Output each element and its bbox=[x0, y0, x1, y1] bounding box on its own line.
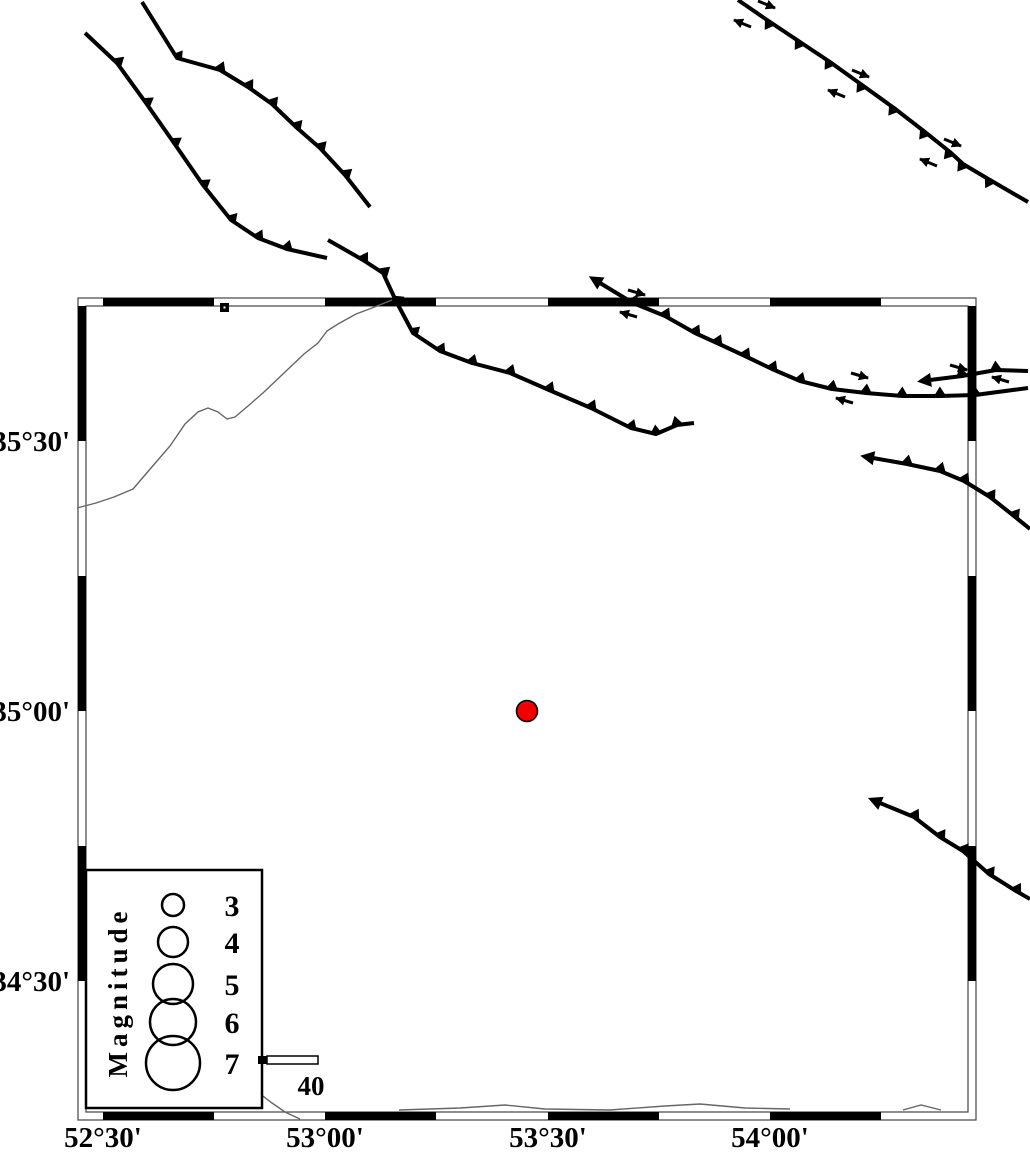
square-station-marker-dot bbox=[224, 307, 226, 309]
scale-bar-cap bbox=[258, 1056, 267, 1064]
y-axis-label-35-30: 35°30' bbox=[0, 426, 70, 458]
frame-black-segment-bottom bbox=[103, 1112, 214, 1120]
stream-legend-corner bbox=[259, 1093, 300, 1119]
fault-ne bbox=[738, 0, 1028, 202]
frame-black-segment-bottom bbox=[548, 1112, 659, 1120]
legend-label-m6: 6 bbox=[225, 1007, 240, 1040]
frame-black-segment-bottom bbox=[770, 1112, 881, 1120]
frame-black-segment-bottom bbox=[325, 1112, 436, 1120]
river-main bbox=[77, 300, 392, 508]
stream-bottom-long bbox=[399, 1104, 790, 1110]
legend-label-m7: 7 bbox=[225, 1048, 240, 1081]
y-axis-label-35-00: 35°00' bbox=[0, 696, 70, 728]
magnitude-legend-title: Magnitude bbox=[103, 906, 133, 1077]
x-axis-label-52-30: 52°30' bbox=[64, 1122, 142, 1152]
strike-slip-arrow bbox=[852, 70, 869, 77]
scale-bar-label: 40 bbox=[298, 1071, 325, 1101]
legend-label-m5: 5 bbox=[225, 969, 240, 1002]
strike-slip-arrow bbox=[628, 290, 645, 295]
frame-black-segment-right bbox=[968, 576, 976, 711]
fault-nw-b bbox=[142, 2, 370, 207]
x-axis-label-53-30: 53°30' bbox=[509, 1122, 587, 1152]
frame-black-segment-top bbox=[770, 298, 881, 306]
slip-arrows-layer bbox=[620, 1, 1009, 403]
scale-bar bbox=[267, 1056, 318, 1064]
y-axis-label-34-30: 34°30' bbox=[0, 966, 70, 998]
x-axis-label-53-00: 53°00' bbox=[286, 1122, 364, 1152]
frame-black-segment-left bbox=[78, 576, 86, 711]
strike-slip-arrow bbox=[950, 365, 967, 370]
strike-slip-arrow bbox=[944, 139, 961, 146]
strike-slip-arrow bbox=[992, 377, 1009, 382]
fault-east-short bbox=[930, 370, 1028, 380]
stream-bottom-right bbox=[903, 1105, 941, 1110]
fault-se bbox=[880, 803, 1030, 899]
frame-black-segment-left bbox=[78, 306, 86, 441]
legend-label-m4: 4 bbox=[225, 927, 240, 960]
seismic-map: Magnitude 3 4 5 6 7 40 52°30' 53°00' 53°… bbox=[0, 0, 1030, 1152]
fault-central bbox=[328, 240, 694, 434]
frame-black-segment-right bbox=[968, 846, 976, 981]
epicenter-dot bbox=[517, 701, 538, 722]
frame-black-segment-top bbox=[103, 298, 214, 306]
legend-label-m3: 3 bbox=[225, 890, 240, 923]
strike-slip-arrow bbox=[758, 1, 775, 8]
strike-slip-arrow bbox=[828, 90, 845, 97]
x-axis-label-54-00: 54°00' bbox=[731, 1122, 809, 1152]
strike-slip-arrow bbox=[734, 20, 751, 27]
seismicity-map-figure: Magnitude 3 4 5 6 7 40 52°30' 53°00' 53°… bbox=[0, 0, 1030, 1152]
fault-lines-layer bbox=[85, 0, 1030, 899]
strike-slip-arrow bbox=[836, 398, 853, 403]
strike-slip-arrow bbox=[620, 312, 637, 317]
strike-slip-arrow bbox=[920, 159, 937, 166]
strike-slip-arrow bbox=[851, 373, 868, 378]
fault-east-mid bbox=[873, 458, 1030, 529]
